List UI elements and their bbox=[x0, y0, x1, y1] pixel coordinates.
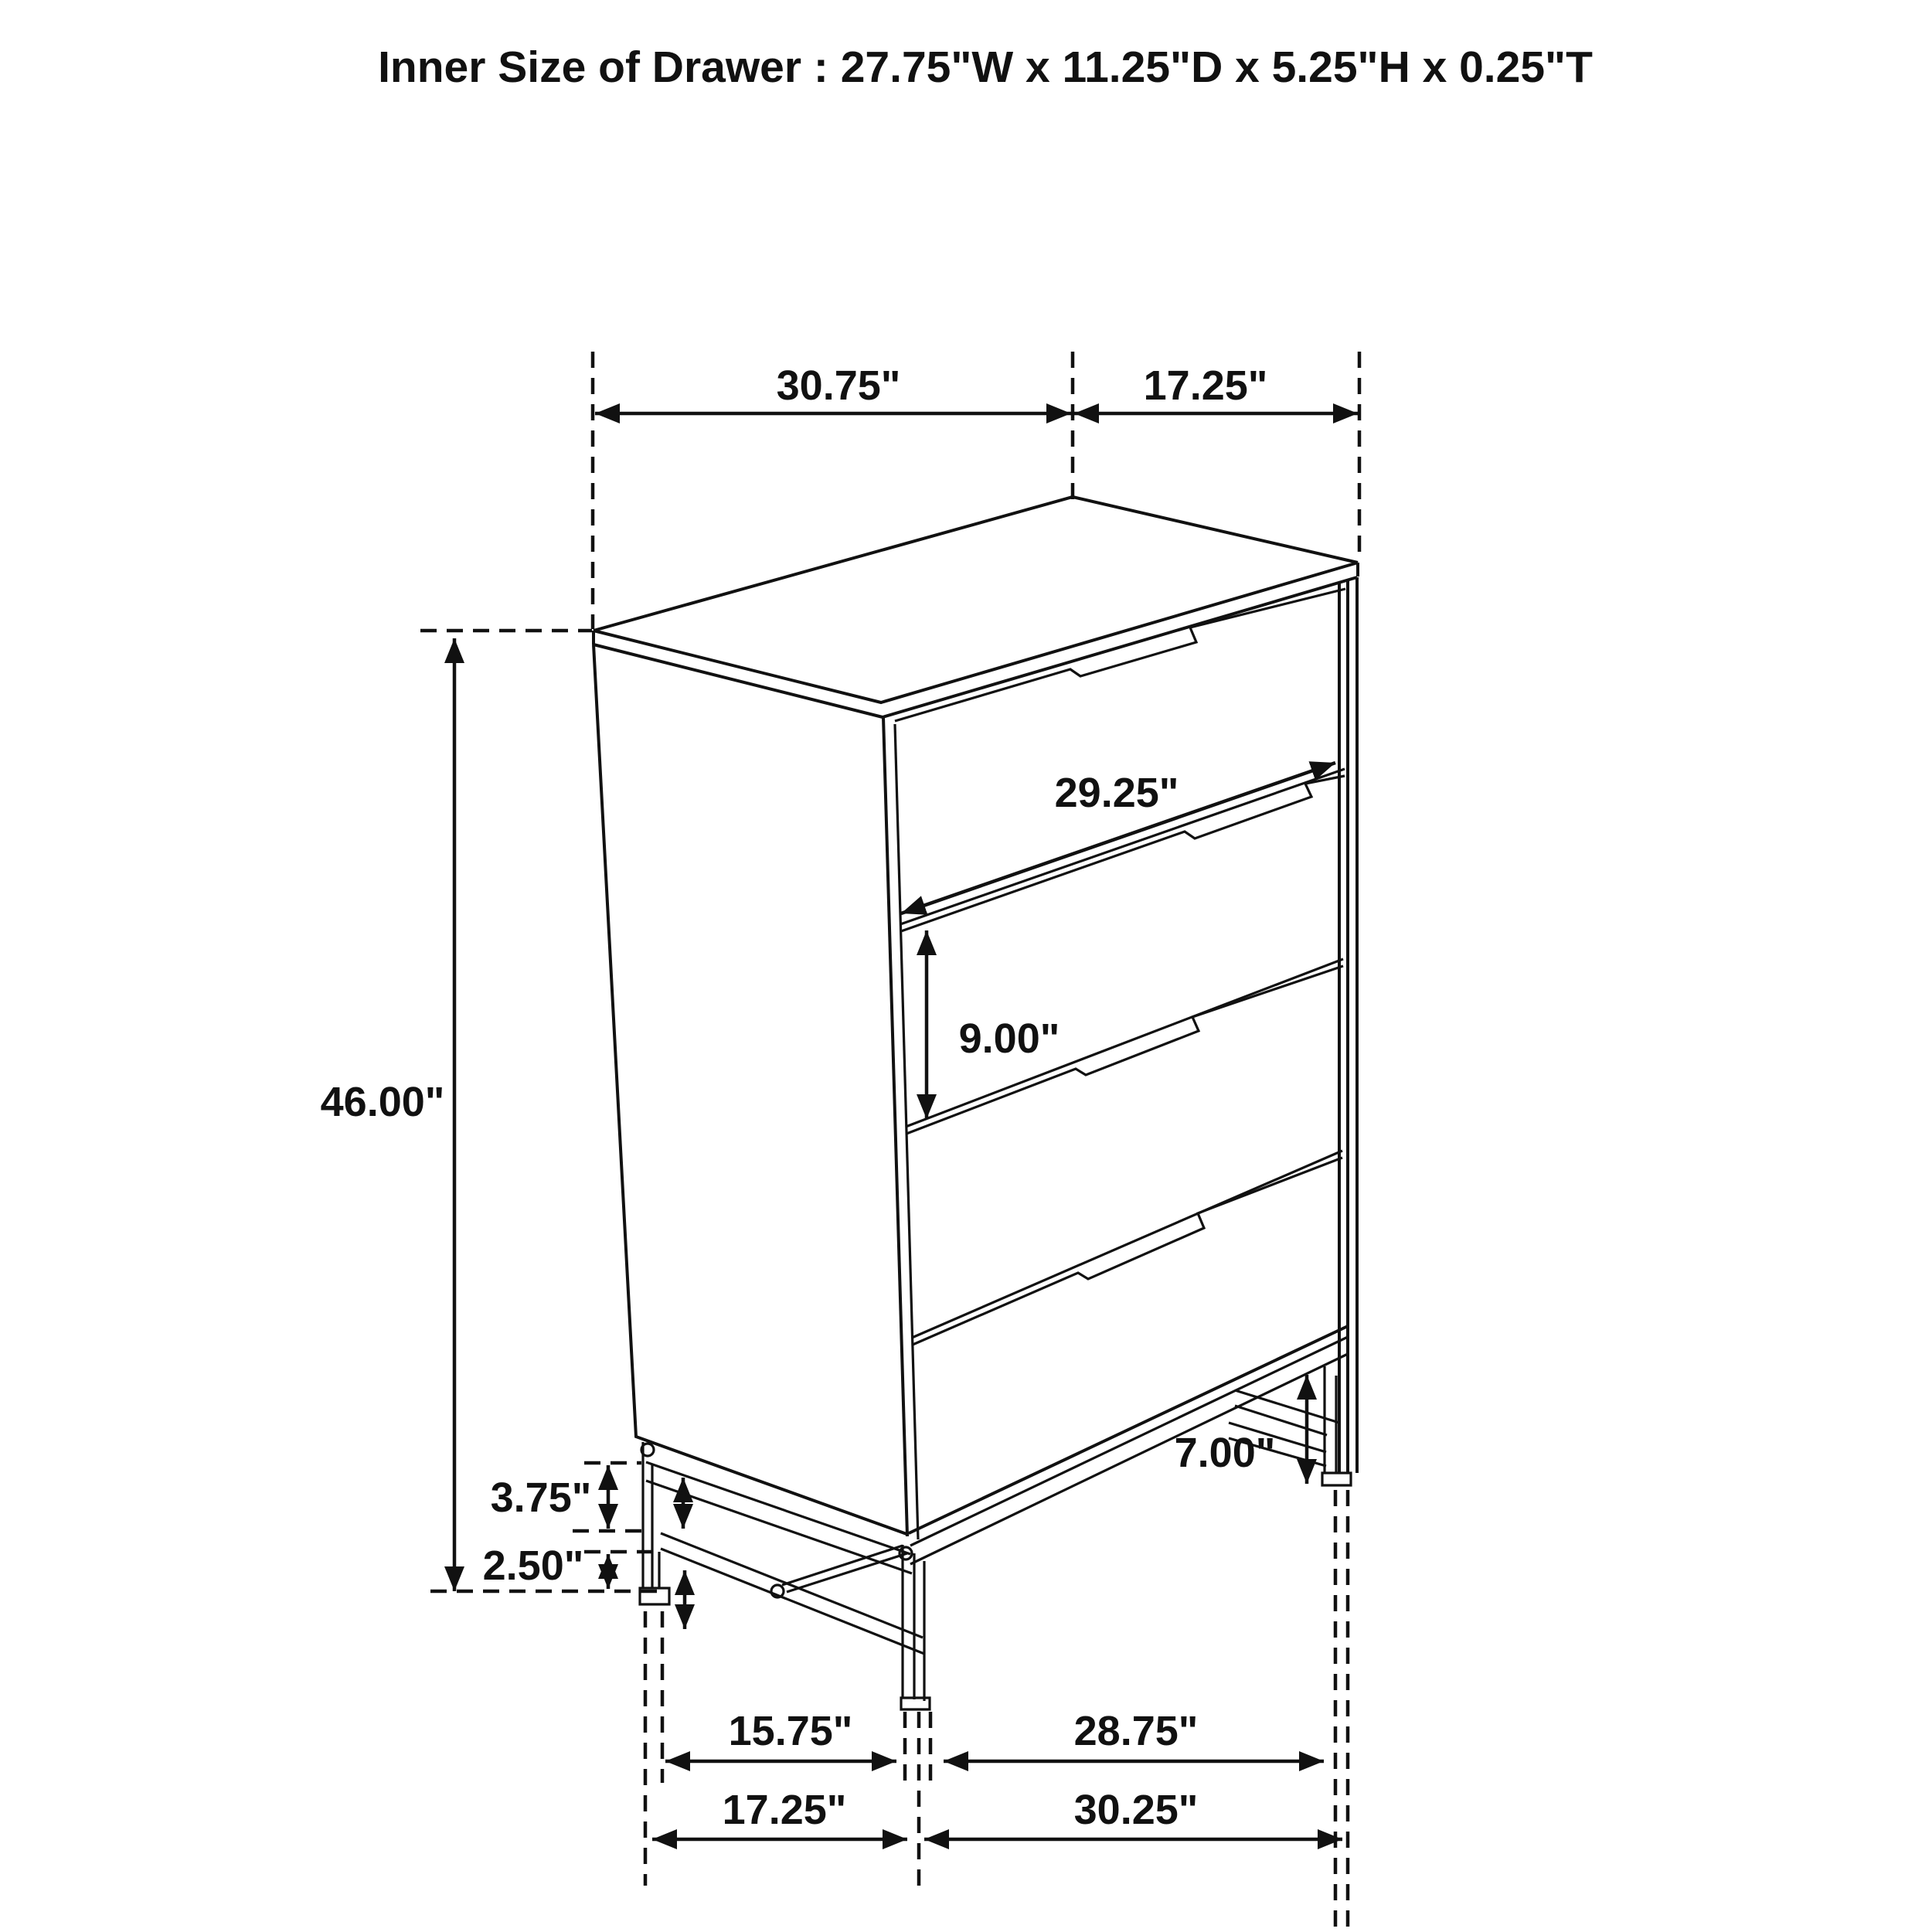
svg-text:17.25": 17.25" bbox=[1144, 362, 1268, 409]
svg-text:3.75": 3.75" bbox=[491, 1475, 592, 1521]
svg-text:29.25": 29.25" bbox=[1055, 770, 1179, 816]
svg-text:17.25": 17.25" bbox=[723, 1787, 847, 1833]
svg-text:9.00": 9.00" bbox=[959, 1015, 1060, 1062]
svg-text:Inner Size of Drawer : 27.75"W: Inner Size of Drawer : 27.75"W x 11.25"D… bbox=[378, 43, 1593, 92]
svg-text:2.50": 2.50" bbox=[483, 1543, 584, 1589]
svg-text:15.75": 15.75" bbox=[729, 1708, 853, 1754]
svg-text:46.00": 46.00" bbox=[321, 1079, 445, 1125]
svg-text:30.25": 30.25" bbox=[1074, 1787, 1199, 1833]
svg-text:28.75": 28.75" bbox=[1074, 1708, 1199, 1754]
svg-text:7.00": 7.00" bbox=[1175, 1430, 1276, 1476]
svg-text:30.75": 30.75" bbox=[777, 362, 901, 409]
